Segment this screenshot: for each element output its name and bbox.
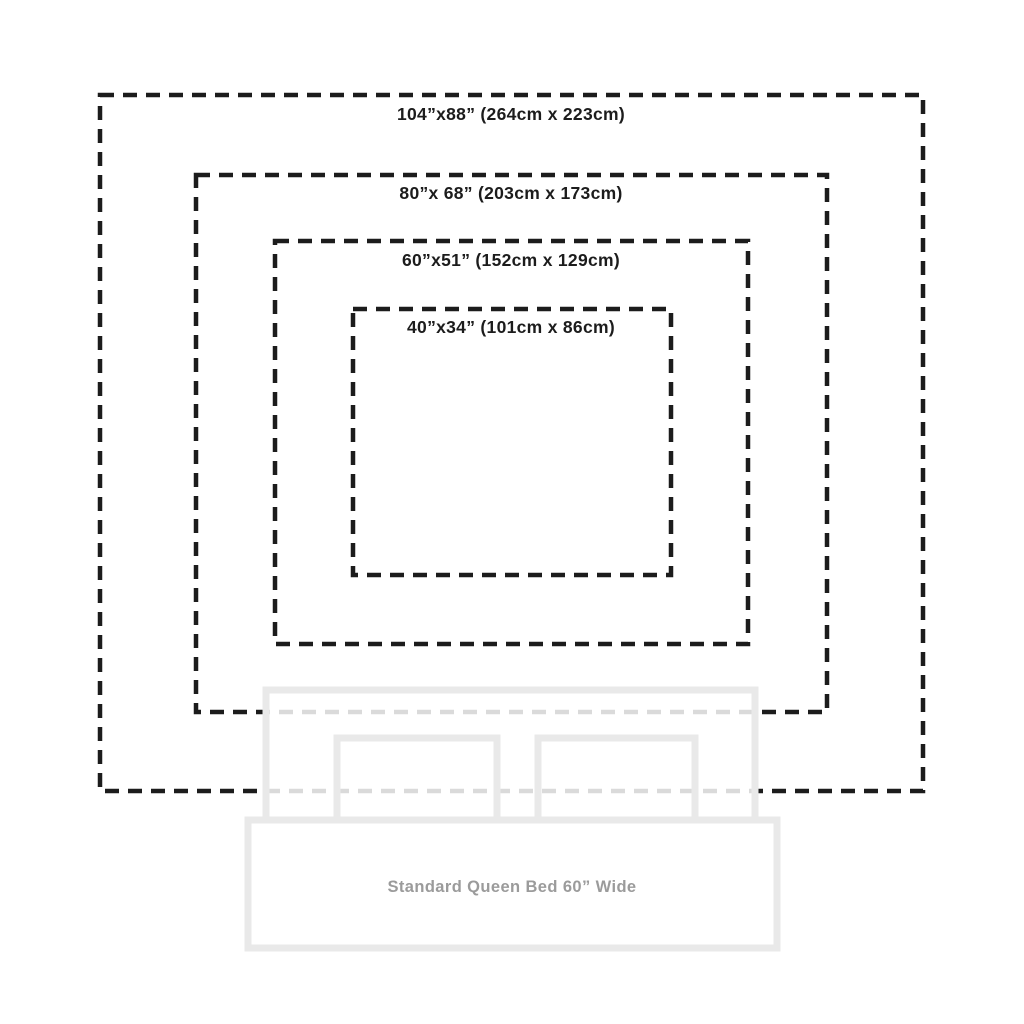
size-label-60x51: 60”x51” (152cm x 129cm) — [402, 250, 620, 270]
size-rect-60x51 — [275, 241, 748, 644]
queen-bed-illustration: Standard Queen Bed 60” Wide — [248, 690, 777, 948]
size-comparison-svg: 104”x88” (264cm x 223cm) 80”x 68” (203cm… — [0, 0, 1024, 1024]
size-label-80x68: 80”x 68” (203cm x 173cm) — [399, 183, 622, 203]
bed-label: Standard Queen Bed 60” Wide — [387, 878, 636, 896]
size-label-104x88: 104”x88” (264cm x 223cm) — [397, 104, 625, 124]
size-label-40x34: 40”x34” (101cm x 86cm) — [407, 317, 615, 337]
size-rect-40x34 — [353, 309, 671, 575]
size-comparison-diagram: 104”x88” (264cm x 223cm) 80”x 68” (203cm… — [0, 0, 1024, 1024]
